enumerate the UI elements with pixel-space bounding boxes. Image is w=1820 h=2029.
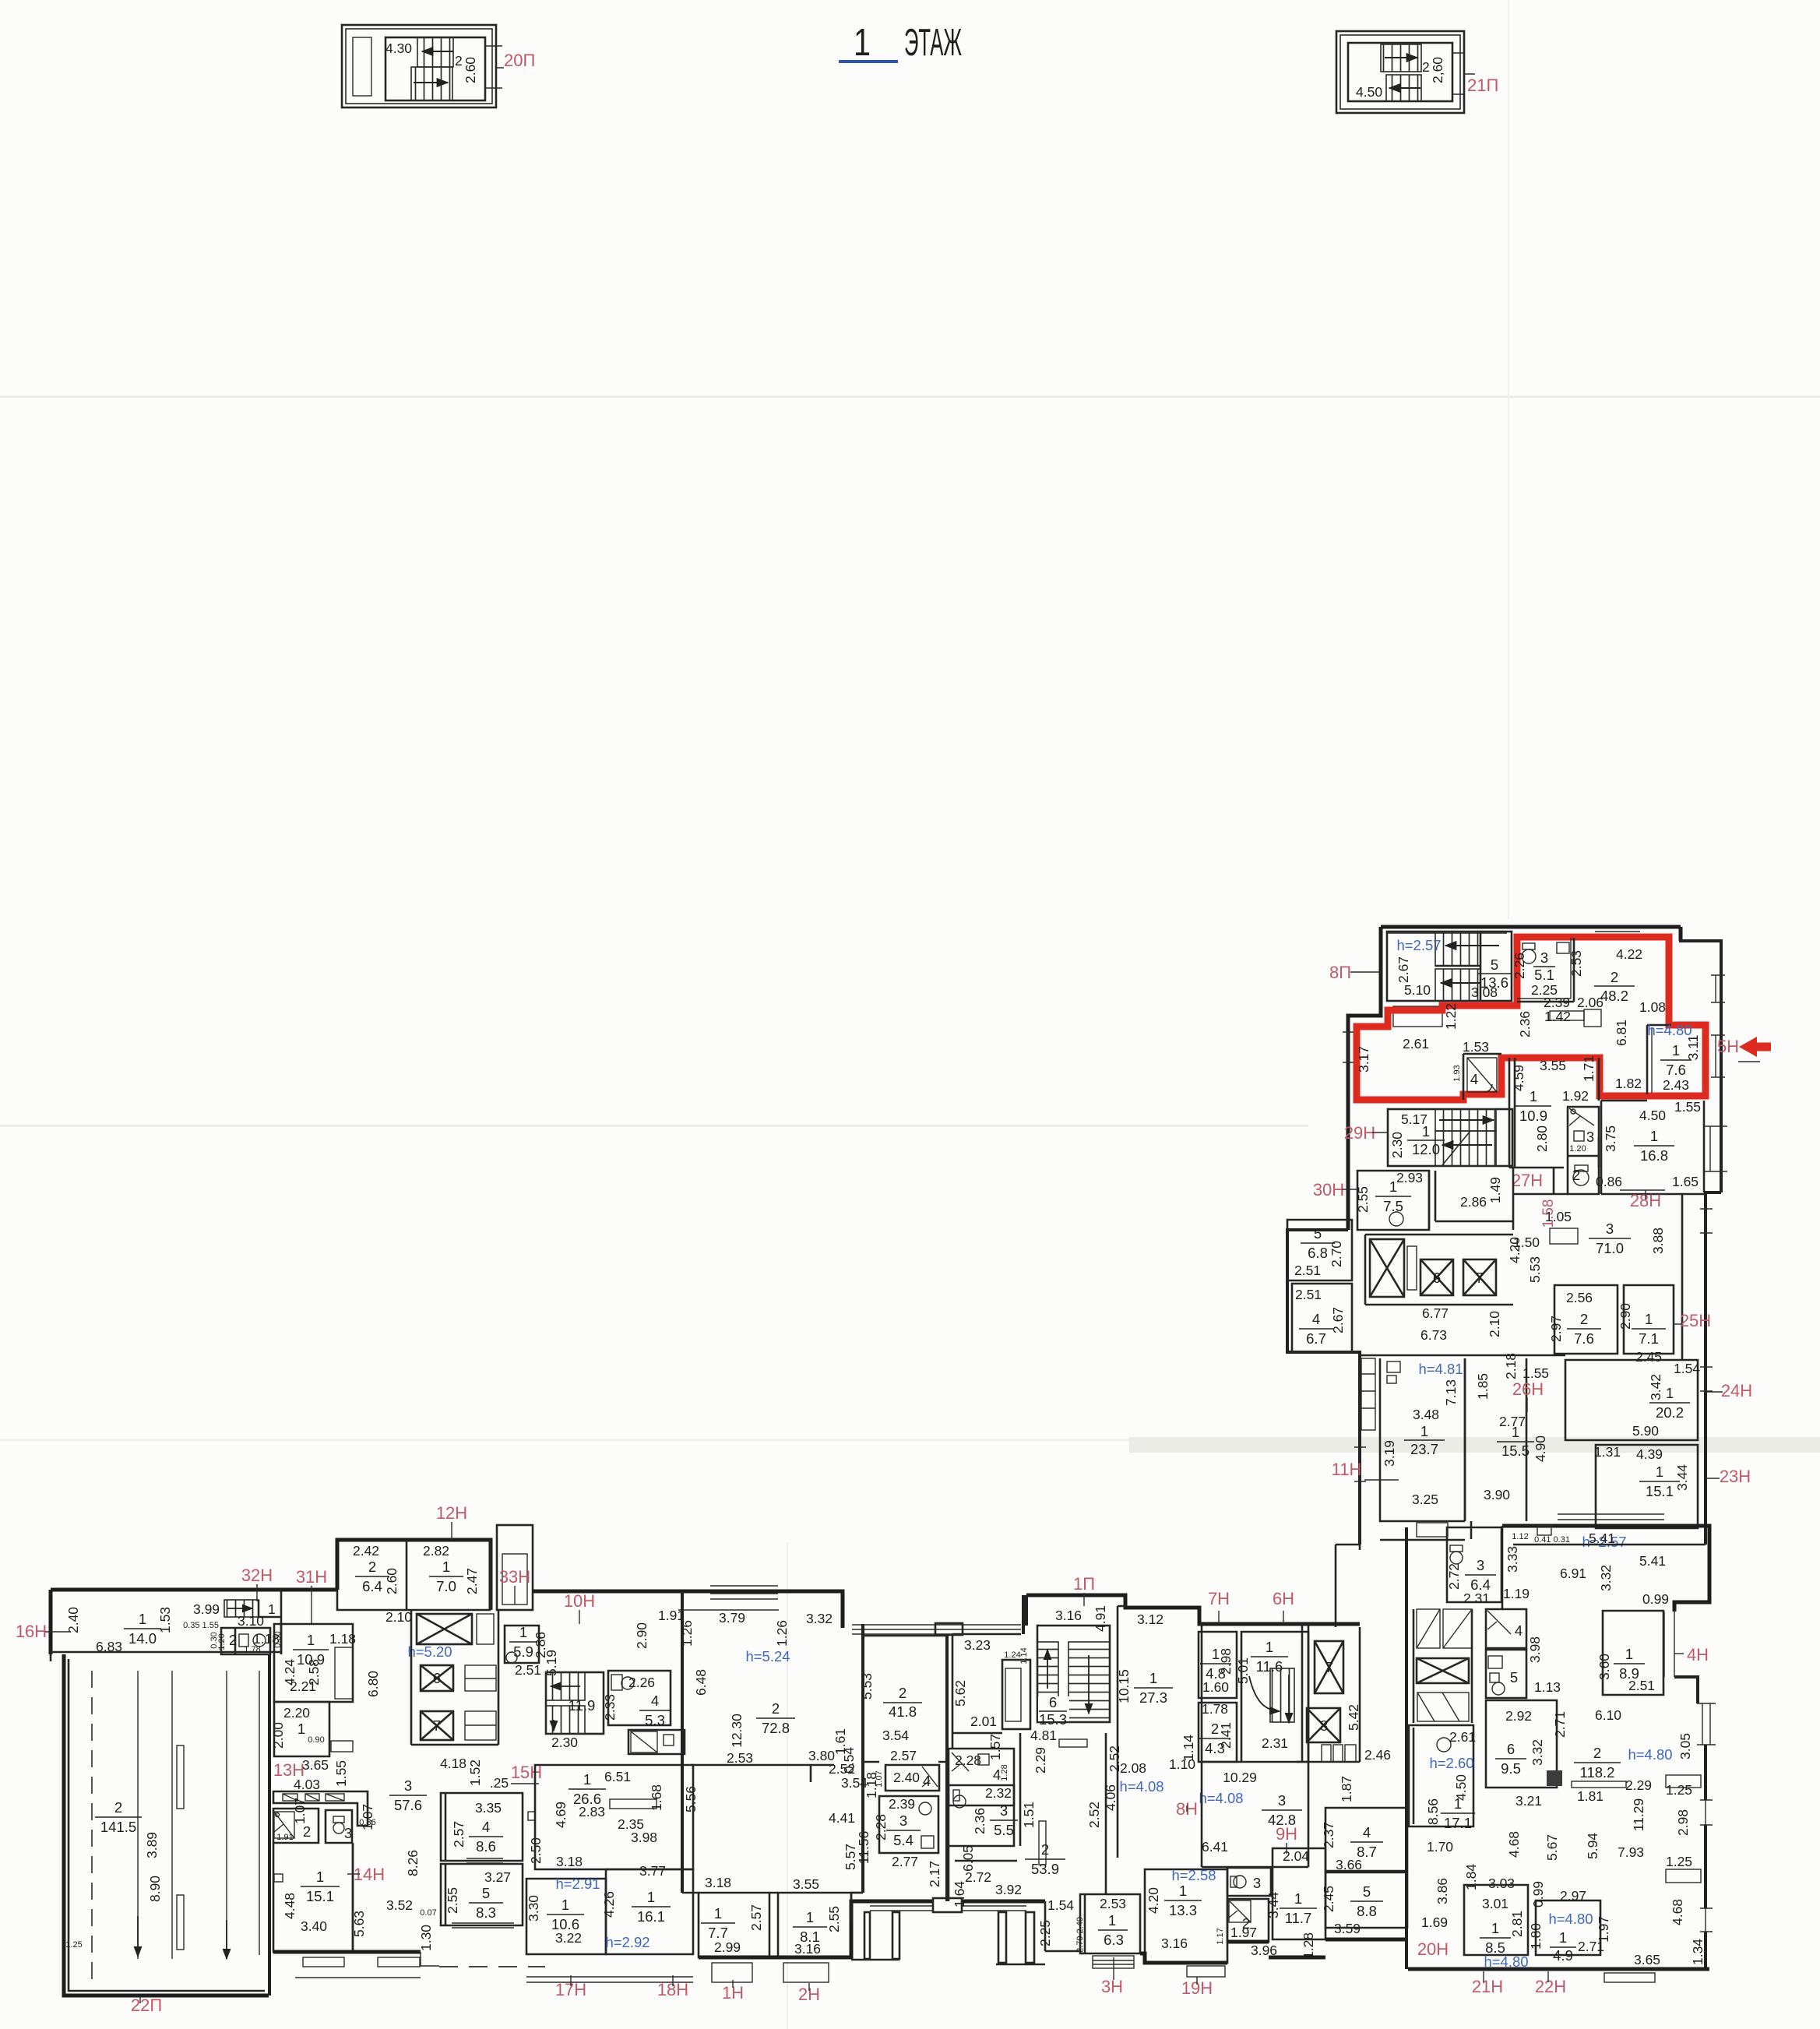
svg-text:25Н: 25Н	[1680, 1311, 1711, 1330]
svg-text:2.97: 2.97	[1560, 1888, 1586, 1904]
svg-text:3.22: 3.22	[555, 1930, 582, 1946]
svg-text:2: 2	[772, 1700, 780, 1717]
svg-text:0.36: 0.36	[359, 1818, 375, 1827]
svg-text:4.81: 4.81	[1030, 1728, 1057, 1743]
svg-text:30Н: 30Н	[1313, 1180, 1344, 1199]
svg-text:2.26: 2.26	[628, 1675, 655, 1690]
svg-text:5.56: 5.56	[683, 1786, 699, 1812]
svg-text:2.55: 2.55	[445, 1887, 460, 1914]
svg-text:2: 2	[114, 1799, 122, 1816]
svg-text:3.35: 3.35	[475, 1800, 502, 1816]
svg-text:71.0: 71.0	[1596, 1240, 1624, 1256]
svg-text:33Н: 33Н	[499, 1567, 530, 1587]
svg-text:1: 1	[561, 1897, 569, 1913]
svg-text:7: 7	[1325, 1659, 1333, 1675]
svg-text:1: 1	[1656, 1464, 1663, 1480]
svg-text:11.29: 11.29	[1631, 1798, 1646, 1832]
svg-text:2.80: 2.80	[1534, 1125, 1550, 1152]
svg-text:1.05: 1.05	[1545, 1209, 1572, 1224]
svg-text:2: 2	[303, 1823, 311, 1840]
svg-text:5: 5	[1363, 1883, 1371, 1900]
svg-text:2.67: 2.67	[1330, 1307, 1346, 1333]
svg-text:h=2.60: h=2.60	[1429, 1755, 1473, 1771]
svg-text:3.08: 3.08	[1471, 985, 1498, 1000]
svg-text:141.5: 141.5	[100, 1819, 136, 1835]
svg-text:6.77: 6.77	[1422, 1305, 1449, 1321]
svg-text:2.77: 2.77	[1499, 1414, 1526, 1429]
svg-text:2.53: 2.53	[727, 1750, 753, 1766]
svg-text:7.7: 7.7	[708, 1925, 728, 1941]
svg-text:3.18: 3.18	[705, 1875, 731, 1890]
svg-text:1: 1	[1625, 1646, 1633, 1662]
svg-text:1.55: 1.55	[1523, 1365, 1549, 1381]
svg-text:4: 4	[1515, 1622, 1523, 1639]
svg-text:0.90: 0.90	[308, 1735, 324, 1745]
svg-text:h=5.24: h=5.24	[745, 1648, 790, 1664]
svg-text:2.79 2.49: 2.79 2.49	[1075, 1917, 1085, 1953]
svg-text:5.63: 5.63	[351, 1911, 367, 1937]
svg-text:7.1: 7.1	[1639, 1330, 1659, 1347]
svg-text:1: 1	[1266, 1639, 1273, 1655]
svg-text:2.31: 2.31	[1262, 1735, 1288, 1751]
svg-text:2.51: 2.51	[515, 1662, 541, 1678]
svg-text:7.5: 7.5	[1383, 1198, 1403, 1214]
svg-text:2.39: 2.39	[1544, 995, 1570, 1010]
svg-text:4.22: 4.22	[1616, 946, 1642, 962]
svg-text:3: 3	[1477, 1557, 1484, 1573]
svg-text:1.78: 1.78	[1202, 1701, 1228, 1717]
svg-text:2.90: 2.90	[634, 1622, 649, 1649]
svg-text:17.1: 17.1	[1444, 1815, 1472, 1831]
svg-text:4.50: 4.50	[1639, 1108, 1666, 1123]
svg-text:0.30: 0.30	[273, 1631, 283, 1647]
svg-text:h=2.92: h=2.92	[605, 1934, 649, 1950]
svg-text:2.90: 2.90	[1618, 1303, 1633, 1330]
svg-text:0.54: 0.54	[841, 1747, 857, 1774]
svg-text:4.48: 4.48	[282, 1893, 297, 1919]
svg-text:h=4.81: h=4.81	[1418, 1361, 1463, 1377]
svg-text:3.66: 3.66	[1336, 1857, 1362, 1872]
svg-text:2.98: 2.98	[1675, 1809, 1691, 1836]
svg-text:5.41: 5.41	[1589, 1531, 1615, 1546]
svg-text:3.19: 3.19	[1382, 1440, 1397, 1467]
svg-text:1.91: 1.91	[276, 1833, 293, 1842]
svg-text:2.41: 2.41	[1218, 1722, 1234, 1749]
svg-text:5.42: 5.42	[1346, 1704, 1361, 1731]
svg-text:2.30: 2.30	[551, 1735, 578, 1750]
svg-text:3.75: 3.75	[1603, 1125, 1618, 1152]
svg-text:3.16: 3.16	[794, 1941, 821, 1957]
svg-text:6.83: 6.83	[96, 1639, 122, 1654]
svg-text:11.7: 11.7	[1285, 1910, 1312, 1926]
svg-text:1.84: 1.84	[1463, 1864, 1479, 1890]
svg-text:1: 1	[1559, 1929, 1567, 1946]
svg-text:1: 1	[1672, 1042, 1680, 1059]
svg-text:3.86: 3.86	[1435, 1878, 1450, 1904]
svg-text:0.30: 0.30	[209, 1632, 219, 1648]
svg-text:16.1: 16.1	[637, 1908, 665, 1925]
svg-text:4.9: 4.9	[1553, 1947, 1573, 1964]
svg-text:2: 2	[1593, 1745, 1601, 1761]
svg-text:1: 1	[1422, 1123, 1430, 1140]
svg-text:1.97: 1.97	[1230, 1925, 1257, 1940]
svg-text:7.13: 7.13	[1443, 1379, 1459, 1406]
svg-text:3.92: 3.92	[995, 1882, 1022, 1897]
svg-text:31Н: 31Н	[296, 1567, 327, 1587]
svg-text:5.01: 5.01	[1235, 1657, 1251, 1684]
svg-text:12Н: 12Н	[436, 1503, 467, 1523]
svg-text:1: 1	[1454, 1795, 1462, 1812]
svg-text:7: 7	[433, 1717, 441, 1734]
svg-text:4.03: 4.03	[294, 1777, 320, 1792]
svg-text:2.72: 2.72	[1446, 1563, 1462, 1590]
svg-text:2.53: 2.53	[1568, 950, 1584, 977]
svg-text:8.6: 8.6	[476, 1838, 496, 1855]
svg-text:1.53: 1.53	[157, 1607, 173, 1633]
svg-text:6.81: 6.81	[1614, 1020, 1629, 1046]
svg-text:3.79: 3.79	[719, 1610, 745, 1626]
svg-text:6.05: 6.05	[960, 1845, 976, 1872]
svg-text:2.98: 2.98	[1218, 1648, 1234, 1675]
svg-text:1: 1	[647, 1889, 655, 1905]
svg-text:6: 6	[1433, 1270, 1441, 1286]
svg-text:3: 3	[1606, 1221, 1614, 1237]
svg-text:2.82: 2.82	[423, 1543, 449, 1559]
svg-text:23Н: 23Н	[1720, 1467, 1751, 1486]
svg-text:5: 5	[482, 1885, 490, 1901]
svg-text:3.21: 3.21	[1515, 1793, 1542, 1809]
svg-text:9.5: 9.5	[1501, 1760, 1521, 1777]
svg-text:4.06: 4.06	[1103, 1784, 1118, 1811]
svg-text:5: 5	[1510, 1669, 1518, 1686]
svg-text:3: 3	[344, 1825, 352, 1841]
svg-text:2.53: 2.53	[1100, 1896, 1126, 1911]
svg-text:2.99: 2.99	[714, 1939, 741, 1955]
svg-text:48.2: 48.2	[1600, 988, 1628, 1004]
svg-text:1.28: 1.28	[1301, 1932, 1316, 1959]
svg-text:11.9: 11.9	[569, 1697, 596, 1714]
svg-text:6.80: 6.80	[365, 1671, 381, 1697]
svg-text:3.16: 3.16	[1055, 1608, 1082, 1623]
svg-text:4: 4	[1312, 1311, 1320, 1327]
svg-text:5.1: 5.1	[1534, 967, 1554, 983]
svg-text:6.51: 6.51	[604, 1769, 631, 1784]
svg-text:11Н: 11Н	[1332, 1460, 1362, 1479]
svg-text:14.0: 14.0	[128, 1630, 157, 1647]
svg-text:2.00: 2.00	[270, 1722, 286, 1749]
svg-text:8.90: 8.90	[147, 1876, 163, 1902]
svg-text:7.6: 7.6	[1574, 1330, 1594, 1347]
svg-text:2.06: 2.06	[1577, 995, 1604, 1010]
svg-text:1.60: 1.60	[1202, 1679, 1229, 1695]
svg-text:3.17: 3.17	[1356, 1046, 1371, 1073]
svg-text:1.19: 1.19	[1503, 1586, 1530, 1601]
svg-text:1.85: 1.85	[1475, 1373, 1491, 1400]
svg-text:2.32: 2.32	[985, 1785, 1012, 1801]
svg-text:4: 4	[1470, 1071, 1478, 1087]
svg-text:6.10: 6.10	[1595, 1707, 1621, 1723]
svg-text:3.40: 3.40	[301, 1918, 327, 1934]
svg-text:1.49: 1.49	[1487, 1177, 1503, 1203]
svg-text:5Н: 5Н	[1717, 1037, 1739, 1056]
svg-text:15.3: 15.3	[1039, 1711, 1067, 1728]
svg-text:3: 3	[1586, 1129, 1594, 1145]
svg-text:7: 7	[1476, 1270, 1484, 1286]
svg-text:h=4.80: h=4.80	[1628, 1746, 1672, 1763]
svg-text:22П: 22П	[131, 1996, 162, 2015]
svg-text:3.27: 3.27	[484, 1869, 511, 1885]
svg-text:1: 1	[268, 1601, 276, 1617]
svg-text:1.12: 1.12	[1512, 1532, 1528, 1541]
svg-text:1: 1	[519, 1624, 527, 1640]
svg-text:3.55: 3.55	[1540, 1058, 1566, 1073]
svg-text:15.5: 15.5	[1501, 1442, 1530, 1459]
svg-text:2.57: 2.57	[451, 1821, 466, 1848]
svg-text:4.39: 4.39	[1636, 1446, 1663, 1462]
svg-text:4.30: 4.30	[385, 41, 412, 56]
svg-text:3.98: 3.98	[631, 1830, 657, 1845]
svg-text:4.69: 4.69	[553, 1802, 569, 1828]
svg-text:8.26: 8.26	[405, 1850, 421, 1876]
svg-text:4.50: 4.50	[1356, 84, 1382, 100]
svg-text:1.14: 1.14	[1019, 1647, 1029, 1664]
svg-text:2.10: 2.10	[1487, 1311, 1502, 1337]
svg-text:20Н: 20Н	[1417, 1939, 1449, 1959]
svg-text:12.30: 12.30	[729, 1714, 745, 1748]
svg-text:7Н: 7Н	[1208, 1589, 1230, 1608]
svg-text:2.70: 2.70	[1329, 1241, 1344, 1267]
svg-text:1.69: 1.69	[1421, 1915, 1448, 1930]
svg-text:6.4: 6.4	[362, 1578, 382, 1594]
svg-text:2.83: 2.83	[579, 1804, 605, 1819]
svg-text:10.9: 10.9	[1519, 1108, 1547, 1124]
svg-text:1.34: 1.34	[1690, 1939, 1706, 1965]
svg-text:1.65: 1.65	[1672, 1174, 1699, 1189]
svg-text:1.51: 1.51	[1021, 1802, 1037, 1828]
svg-text:53.9: 53.9	[1031, 1861, 1059, 1877]
svg-text:72.8: 72.8	[762, 1720, 790, 1736]
svg-text:1: 1	[1108, 1912, 1116, 1929]
svg-text:3.98: 3.98	[1527, 1636, 1543, 1663]
svg-text:1.54: 1.54	[1047, 1897, 1074, 1913]
svg-text:3.11: 3.11	[1685, 1035, 1701, 1061]
svg-text:2: 2	[1580, 1311, 1588, 1327]
svg-text:1.55: 1.55	[333, 1760, 349, 1787]
svg-text:1.97: 1.97	[1596, 1916, 1611, 1943]
svg-text:1.28: 1.28	[1000, 1764, 1009, 1781]
svg-text:2.33: 2.33	[602, 1694, 618, 1721]
svg-text:1: 1	[1389, 1178, 1397, 1195]
svg-text:1: 1	[297, 1721, 305, 1737]
svg-text:5.5: 5.5	[994, 1822, 1014, 1838]
svg-text:8.56: 8.56	[1425, 1798, 1441, 1825]
svg-text:h=4.08: h=4.08	[1199, 1790, 1243, 1806]
svg-text:2: 2	[1422, 59, 1430, 75]
svg-text:20.2: 20.2	[1656, 1404, 1684, 1421]
svg-text:2.86: 2.86	[1460, 1194, 1487, 1210]
svg-text:1: 1	[1645, 1311, 1653, 1327]
svg-text:3.30: 3.30	[526, 1895, 541, 1922]
svg-text:2.47: 2.47	[464, 1568, 480, 1594]
svg-text:2.51: 2.51	[1628, 1678, 1655, 1693]
svg-text:3.23: 3.23	[964, 1637, 991, 1653]
svg-text:3.12: 3.12	[1137, 1612, 1163, 1627]
svg-text:2.30: 2.30	[1389, 1132, 1405, 1158]
svg-text:1: 1	[1530, 1088, 1537, 1104]
svg-text:4: 4	[482, 1819, 490, 1835]
svg-text:2: 2	[1611, 969, 1618, 985]
svg-text:4.91: 4.91	[1093, 1605, 1108, 1632]
svg-text:1: 1	[139, 1611, 146, 1627]
svg-text:1.25: 1.25	[1666, 1854, 1692, 1869]
svg-text:2.08: 2.08	[1120, 1760, 1146, 1776]
svg-text:1.93: 1.93	[1452, 1065, 1462, 1081]
svg-text:3: 3	[1540, 949, 1548, 966]
svg-text:2.51: 2.51	[1295, 1287, 1322, 1302]
svg-text:1.71: 1.71	[1581, 1055, 1596, 1082]
svg-text:1: 1	[1666, 1385, 1674, 1401]
svg-text:1: 1	[316, 1869, 324, 1885]
svg-text:1.24: 1.24	[1004, 1650, 1020, 1660]
svg-text:3: 3	[404, 1777, 412, 1794]
svg-text:2.93: 2.93	[1396, 1170, 1423, 1185]
svg-text:3.16: 3.16	[1161, 1936, 1188, 1951]
svg-text:2: 2	[455, 53, 463, 69]
svg-text:0.99: 0.99	[1642, 1591, 1669, 1607]
svg-text:2.46: 2.46	[1364, 1747, 1391, 1763]
svg-text:4.90: 4.90	[1533, 1435, 1548, 1462]
svg-text:2.45: 2.45	[1635, 1349, 1662, 1365]
svg-text:1.26: 1.26	[679, 1620, 695, 1647]
svg-text:16.8: 16.8	[1640, 1147, 1668, 1164]
svg-text:27.3: 27.3	[1139, 1689, 1167, 1706]
svg-text:3.44: 3.44	[1266, 1892, 1281, 1918]
svg-text:2.52: 2.52	[1086, 1802, 1102, 1828]
svg-text:3.05: 3.05	[1677, 1733, 1693, 1760]
svg-text:5: 5	[1314, 1225, 1322, 1242]
svg-text:2: 2	[1572, 1167, 1580, 1183]
svg-text:1.22: 1.22	[1443, 1003, 1459, 1030]
svg-text:2: 2	[368, 1559, 376, 1575]
svg-text:9Н: 9Н	[1276, 1824, 1297, 1844]
svg-text:4.26: 4.26	[601, 1891, 617, 1918]
svg-text:1.87: 1.87	[1339, 1776, 1354, 1802]
svg-text:5.53: 5.53	[1527, 1256, 1543, 1283]
svg-text:1.78: 1.78	[244, 1645, 260, 1654]
svg-text:2.39: 2.39	[889, 1796, 915, 1812]
svg-text:3.99: 3.99	[193, 1601, 220, 1617]
svg-text:2.20: 2.20	[283, 1705, 310, 1721]
svg-text:2.57: 2.57	[890, 1748, 917, 1763]
svg-text:6Н: 6Н	[1273, 1589, 1294, 1608]
svg-text:0.86: 0.86	[1596, 1174, 1622, 1189]
svg-text:5.90: 5.90	[1632, 1423, 1659, 1439]
svg-text:8.8: 8.8	[1357, 1903, 1377, 1919]
svg-text:2.60: 2.60	[463, 57, 478, 83]
svg-text:ЭТАЖ: ЭТАЖ	[904, 22, 962, 64]
svg-text:2.29: 2.29	[1033, 1747, 1048, 1774]
svg-text:5.9: 5.9	[513, 1643, 533, 1660]
svg-text:2.60: 2.60	[384, 1568, 400, 1594]
svg-text:118.2: 118.2	[1580, 1764, 1615, 1781]
svg-text:32Н: 32Н	[241, 1566, 273, 1585]
svg-text:2.77: 2.77	[892, 1854, 918, 1869]
svg-text:4.20: 4.20	[1146, 1887, 1161, 1914]
svg-text:1.55: 1.55	[1674, 1099, 1701, 1115]
svg-text:2.21: 2.21	[290, 1679, 316, 1694]
svg-text:3.89: 3.89	[144, 1832, 160, 1858]
svg-text:29Н: 29Н	[1344, 1123, 1375, 1143]
svg-text:6: 6	[1507, 1741, 1515, 1757]
svg-text:1.08: 1.08	[1639, 999, 1666, 1015]
svg-text:1.20: 1.20	[1569, 1144, 1586, 1154]
svg-text:2.97: 2.97	[1548, 1316, 1564, 1342]
svg-text:6.91: 6.91	[1560, 1566, 1586, 1581]
svg-text:10.29: 10.29	[1223, 1770, 1257, 1785]
svg-text:27Н: 27Н	[1512, 1171, 1543, 1190]
svg-text:2: 2	[229, 1632, 237, 1648]
svg-text:1.31: 1.31	[1594, 1444, 1621, 1460]
svg-text:1: 1	[806, 1909, 814, 1925]
svg-text:1.52: 1.52	[467, 1760, 483, 1786]
svg-text:2.57: 2.57	[748, 1904, 764, 1931]
svg-text:3.01: 3.01	[1482, 1896, 1508, 1911]
svg-text:1.64: 1.64	[952, 1881, 967, 1907]
svg-text:3.65: 3.65	[1634, 1952, 1660, 1967]
svg-text:11.56: 11.56	[856, 1831, 871, 1865]
svg-text:2.67: 2.67	[1396, 956, 1411, 983]
svg-text:5.3: 5.3	[645, 1712, 665, 1728]
svg-text:21П: 21П	[1467, 76, 1498, 95]
svg-text:13.3: 13.3	[1169, 1902, 1197, 1918]
svg-text:2.55: 2.55	[1355, 1186, 1371, 1213]
svg-text:2.71: 2.71	[1552, 1711, 1568, 1738]
svg-text:26Н: 26Н	[1512, 1379, 1544, 1399]
svg-text:0.99: 0.99	[1530, 1881, 1546, 1907]
svg-text:3: 3	[1000, 1802, 1008, 1819]
svg-text:1.68: 1.68	[649, 1784, 664, 1811]
svg-text:2: 2	[899, 1685, 906, 1701]
svg-text:1.30: 1.30	[418, 1925, 434, 1951]
svg-text:1: 1	[1179, 1883, 1187, 1899]
svg-text:1.17: 1.17	[1216, 1928, 1225, 1944]
svg-text:1.25: 1.25	[1666, 1782, 1692, 1798]
svg-text:10Н: 10Н	[564, 1591, 595, 1611]
svg-text:2.31: 2.31	[1463, 1590, 1490, 1606]
svg-text:3.32: 3.32	[806, 1611, 833, 1626]
svg-text:1: 1	[583, 1771, 591, 1788]
svg-text:5.67: 5.67	[1544, 1834, 1560, 1861]
svg-text:3.44: 3.44	[1674, 1464, 1690, 1491]
svg-text:3.60: 3.60	[1596, 1654, 1612, 1680]
svg-text:24Н: 24Н	[1721, 1381, 1752, 1400]
svg-text:8: 8	[1320, 1717, 1328, 1734]
svg-text:20П: 20П	[504, 51, 535, 70]
svg-text:2.01: 2.01	[970, 1714, 997, 1729]
svg-text:1.53: 1.53	[1463, 1039, 1489, 1055]
svg-text:1: 1	[307, 1632, 315, 1648]
svg-text:41.8: 41.8	[889, 1703, 917, 1720]
svg-text:2.81: 2.81	[1509, 1911, 1525, 1937]
svg-text:2.51: 2.51	[1294, 1263, 1321, 1278]
svg-text:2.36: 2.36	[972, 1808, 987, 1834]
svg-text:1: 1	[1650, 1128, 1658, 1144]
svg-text:h=4.80: h=4.80	[1548, 1911, 1593, 1927]
svg-text:1.70: 1.70	[1427, 1839, 1453, 1855]
svg-text:2.45: 2.45	[1321, 1886, 1336, 1912]
svg-text:1.81: 1.81	[1577, 1788, 1604, 1804]
svg-text:6.3: 6.3	[1104, 1932, 1124, 1948]
